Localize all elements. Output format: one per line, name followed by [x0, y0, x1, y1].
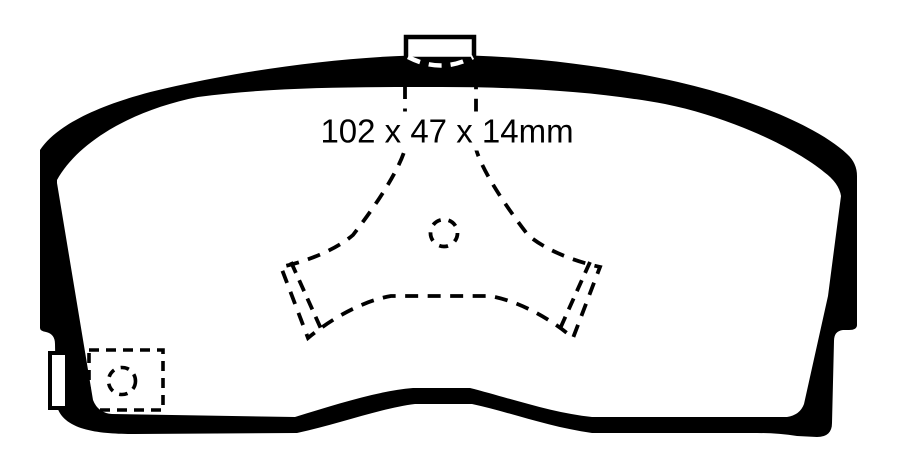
side-lug — [50, 353, 67, 408]
brake-pad-diagram: 102 x 47 x 14mm — [0, 0, 898, 476]
brake-pad-drawing — [0, 0, 898, 476]
mounting-tab — [406, 37, 474, 59]
dimension-label: 102 x 47 x 14mm — [312, 112, 581, 151]
